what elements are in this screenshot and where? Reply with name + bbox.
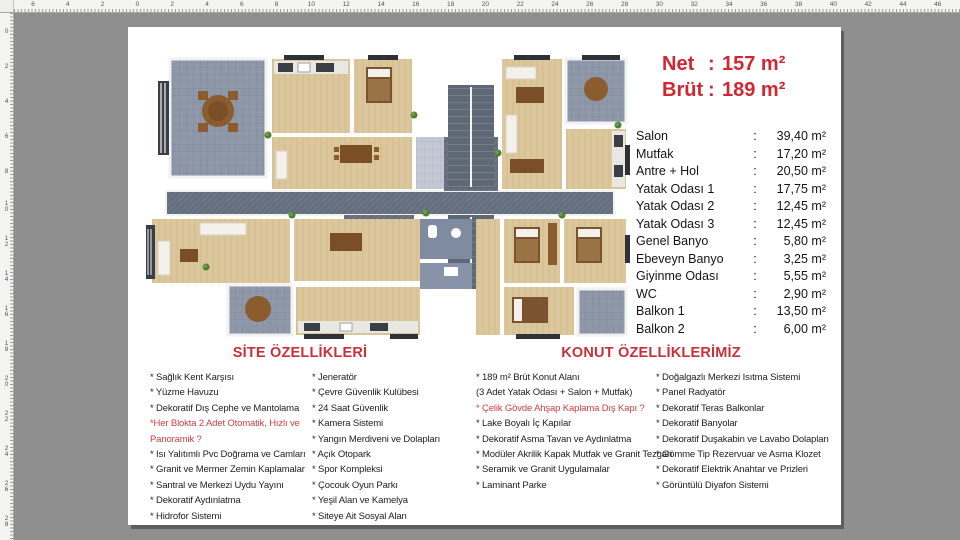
room-area-row: Antre + Hol:20,50 m²: [636, 164, 832, 182]
ruler-number: 12: [343, 1, 350, 9]
feature-item: * Seramik ve Granit Uygulamalar: [476, 462, 656, 477]
ruler-number: 16: [412, 1, 419, 9]
vertical-ruler[interactable]: 0246810121416182022242628: [0, 13, 14, 540]
ruler-number: 12: [1, 235, 11, 247]
feature-item: * Laminant Parke: [476, 478, 656, 493]
ruler-number: 10: [1, 200, 11, 212]
feature-item: * Jeneratör: [312, 370, 450, 385]
site-features-col2: * Jeneratör* Çevre Güvenlik Kulübesi* 24…: [312, 370, 450, 524]
feature-item: * Gömme Tip Rezervuar ve Asma Klozet: [656, 447, 826, 462]
ruler-number: 22: [1, 410, 11, 422]
site-features-col1: * Sağlık Kent Karşısı* Yüzme Havuzu* Dek…: [150, 370, 312, 524]
room-colon: :: [748, 304, 762, 318]
feature-item: * Hidrofor Sistemi: [150, 509, 312, 524]
ruler-number: 42: [865, 1, 872, 9]
feature-item: * Dekoratif Aydınlatma: [150, 493, 312, 508]
feature-item: * Çelik Gövde Ahşap Kaplama Dış Kapı ?: [476, 401, 656, 416]
room-area-row: Genel Banyo:5,80 m²: [636, 234, 832, 252]
konut-features-col2: * Doğalgazlı Merkezi Isıtma Sistemi* Pan…: [656, 370, 826, 493]
ruler-number: 6: [31, 1, 35, 9]
room-colon: :: [748, 129, 762, 143]
ruler-number: 20: [482, 1, 489, 9]
brut-label: Brüt: [662, 77, 708, 103]
ruler-corner: [0, 0, 14, 13]
site-features-block: SİTE ÖZELLİKLERİ * Sağlık Kent Karşısı* …: [150, 345, 450, 524]
brut-area-row: Brüt : 189 m²: [662, 77, 832, 103]
ruler-number: 4: [205, 1, 209, 9]
room-label: Giyinme Odası: [636, 269, 748, 283]
room-value: 6,00 m²: [762, 322, 826, 336]
room-label: Balkon 1: [636, 304, 748, 318]
konut-features-col1: * 189 m² Brüt Konut Alanı(3 Adet Yatak O…: [476, 370, 656, 493]
ruler-number: 38: [795, 1, 802, 9]
room-label: Ebeveyn Banyo: [636, 252, 748, 266]
floorplan-bottom-right-unit: [420, 219, 626, 335]
feature-item: (3 Adet Yatak Odası + Salon + Mutfak): [476, 385, 656, 400]
room-colon: :: [748, 252, 762, 266]
room-value: 2,90 m²: [762, 287, 826, 301]
feature-item: * Lake Boyalı İç Kapılar: [476, 416, 656, 431]
ruler-number: 0: [1, 28, 11, 34]
feature-item: * Isı Yalıtımlı Pvc Doğrama ve Camları: [150, 447, 312, 462]
room-value: 39,40 m²: [762, 129, 826, 143]
feature-item: * Spor Kompleksi: [312, 462, 450, 477]
floorplan-bottom-left-unit: [146, 219, 420, 335]
room-label: Yatak Odası 1: [636, 182, 748, 196]
ruler-number: 8: [1, 168, 11, 174]
feature-item: * Doğalgazlı Merkezi Isıtma Sistemi: [656, 370, 826, 385]
features-section: SİTE ÖZELLİKLERİ * Sağlık Kent Karşısı* …: [150, 345, 827, 524]
room-value: 17,75 m²: [762, 182, 826, 196]
feature-item: * Modüler Akrilik Kapak Mutfak ve Granit…: [476, 447, 656, 462]
ruler-number: 28: [1, 515, 11, 527]
net-value: 157 m²: [722, 51, 785, 77]
feature-item: * Dekoratif Duşakabin ve Lavabo Dolaplar…: [656, 432, 826, 447]
ruler-number: 14: [377, 1, 384, 9]
room-value: 13,50 m²: [762, 304, 826, 318]
room-colon: :: [748, 199, 762, 213]
ruler-number: 44: [899, 1, 906, 9]
floorplan-image[interactable]: [144, 53, 632, 341]
ruler-number: 6: [1, 133, 11, 139]
konut-features-block: KONUT ÖZELLİKLERİMİZ * 189 m² Brüt Konut…: [476, 345, 826, 524]
ruler-number: 40: [830, 1, 837, 9]
ruler-number: 10: [308, 1, 315, 9]
feature-item: * Kamera Sistemi: [312, 416, 450, 431]
feature-item: * Çocouk Oyun Parkı: [312, 478, 450, 493]
ruler-number: 26: [1, 480, 11, 492]
ruler-number: 0: [136, 1, 140, 9]
room-label: Yatak Odası 2: [636, 199, 748, 213]
feature-item: * Santral ve Merkezi Uydu Yayını: [150, 478, 312, 493]
room-area-row: Yatak Odası 1:17,75 m²: [636, 182, 832, 200]
room-value: 17,20 m²: [762, 147, 826, 161]
feature-item: * Dekoratif Banyolar: [656, 416, 826, 431]
document-page[interactable]: Net : 157 m² Brüt : 189 m² Salon:39,40 m…: [128, 27, 841, 525]
room-label: Salon: [636, 129, 748, 143]
room-area-list: Salon:39,40 m²Mutfak:17,20 m²Antre + Hol…: [636, 129, 832, 339]
room-area-row: Salon:39,40 m²: [636, 129, 832, 147]
ruler-number: 34: [725, 1, 732, 9]
ruler-number: 46: [934, 1, 941, 9]
net-label: Net: [662, 51, 708, 77]
room-area-row: WC:2,90 m²: [636, 287, 832, 305]
room-label: Mutfak: [636, 147, 748, 161]
floorplan-top-right-unit: [502, 59, 626, 189]
room-colon: :: [748, 322, 762, 336]
ruler-number: 6: [240, 1, 244, 9]
room-label: Balkon 2: [636, 322, 748, 336]
room-area-row: Yatak Odası 2:12,45 m²: [636, 199, 832, 217]
room-value: 20,50 m²: [762, 164, 826, 178]
room-value: 12,45 m²: [762, 199, 826, 213]
room-value: 5,80 m²: [762, 234, 826, 248]
ruler-number: 26: [586, 1, 593, 9]
ruler-number: 28: [621, 1, 628, 9]
ruler-number: 24: [551, 1, 558, 9]
room-area-row: Giyinme Odası:5,55 m²: [636, 269, 832, 287]
ruler-number: 36: [760, 1, 767, 9]
feature-item: * Panel Radyatör: [656, 385, 826, 400]
room-area-row: Yatak Odası 3:12,45 m²: [636, 217, 832, 235]
application-window: { "rulers": { "top": ["6","4","2","0","2…: [0, 0, 960, 540]
net-brut-block: Net : 157 m² Brüt : 189 m²: [662, 51, 832, 103]
room-colon: :: [748, 287, 762, 301]
ruler-number: 18: [1, 340, 11, 352]
net-area-row: Net : 157 m²: [662, 51, 832, 77]
room-area-row: Balkon 2:6,00 m²: [636, 322, 832, 340]
ruler-number: 30: [656, 1, 663, 9]
ruler-number: 14: [1, 270, 11, 282]
ruler-number: 18: [447, 1, 454, 9]
feature-item: * Granit ve Mermer Zemin Kaplamalar: [150, 462, 312, 477]
room-value: 5,55 m²: [762, 269, 826, 283]
room-value: 12,45 m²: [762, 217, 826, 231]
site-features-title: SİTE ÖZELLİKLERİ: [150, 345, 450, 361]
ruler-number: 4: [1, 98, 11, 104]
feature-item: * Dekoratif Asma Tavan ve Aydınlatma: [476, 432, 656, 447]
ruler-number: 20: [1, 375, 11, 387]
ruler-tick-marks: [0, 9, 960, 12]
ruler-number: 2: [1, 63, 11, 69]
area-info-panel: Net : 157 m² Brüt : 189 m² Salon:39,40 m…: [636, 51, 832, 339]
ruler-number: 2: [170, 1, 174, 9]
room-colon: :: [748, 217, 762, 231]
room-colon: :: [748, 147, 762, 161]
ruler-number: 4: [66, 1, 70, 9]
room-label: Antre + Hol: [636, 164, 748, 178]
konut-features-title: KONUT ÖZELLİKLERİMİZ: [476, 345, 826, 361]
room-area-row: Balkon 1:13,50 m²: [636, 304, 832, 322]
feature-item: * Dekoratif Teras Balkonlar: [656, 401, 826, 416]
feature-item: * Yeşil Alan ve Kamelya: [312, 493, 450, 508]
room-colon: :: [748, 164, 762, 178]
floorplan-top-left-unit: [158, 59, 470, 189]
room-area-row: Mutfak:17,20 m²: [636, 147, 832, 165]
feature-item: *Her Blokta 2 Adet Otomatik, Hızlı ve Pa…: [150, 416, 312, 447]
room-area-row: Ebeveyn Banyo:3,25 m²: [636, 252, 832, 270]
room-label: Yatak Odası 3: [636, 217, 748, 231]
brut-value: 189 m²: [722, 77, 785, 103]
feature-item: * Dekoratif Elektrik Anahtar ve Prizleri: [656, 462, 826, 477]
feature-item: * Çevre Güvenlik Kulübesi: [312, 385, 450, 400]
feature-item: * Dekoratif Dış Cephe ve Mantolama: [150, 401, 312, 416]
room-value: 3,25 m²: [762, 252, 826, 266]
ruler-number: 16: [1, 305, 11, 317]
room-label: Genel Banyo: [636, 234, 748, 248]
feature-item: * Açık Otopark: [312, 447, 450, 462]
feature-item: * Siteye Ait Sosyal Alan: [312, 509, 450, 524]
net-colon: :: [708, 51, 722, 77]
feature-item: * Görüntülü Diyafon Sistemi: [656, 478, 826, 493]
room-colon: :: [748, 182, 762, 196]
ruler-number: 24: [1, 445, 11, 457]
ruler-number: 8: [275, 1, 279, 9]
ruler-number: 2: [101, 1, 105, 9]
brut-colon: :: [708, 77, 722, 103]
ruler-number: 32: [691, 1, 698, 9]
room-colon: :: [748, 269, 762, 283]
room-colon: :: [748, 234, 762, 248]
feature-item: * Yüzme Havuzu: [150, 385, 312, 400]
room-label: WC: [636, 287, 748, 301]
feature-item: * Sağlık Kent Karşısı: [150, 370, 312, 385]
feature-item: * 189 m² Brüt Konut Alanı: [476, 370, 656, 385]
ruler-number: 22: [517, 1, 524, 9]
feature-item: * Yangın Merdiveni ve Dolapları: [312, 432, 450, 447]
feature-item: * 24 Saat Güvenlik: [312, 401, 450, 416]
horizontal-ruler[interactable]: 6420246810121416182022242628303234363840…: [0, 0, 960, 13]
